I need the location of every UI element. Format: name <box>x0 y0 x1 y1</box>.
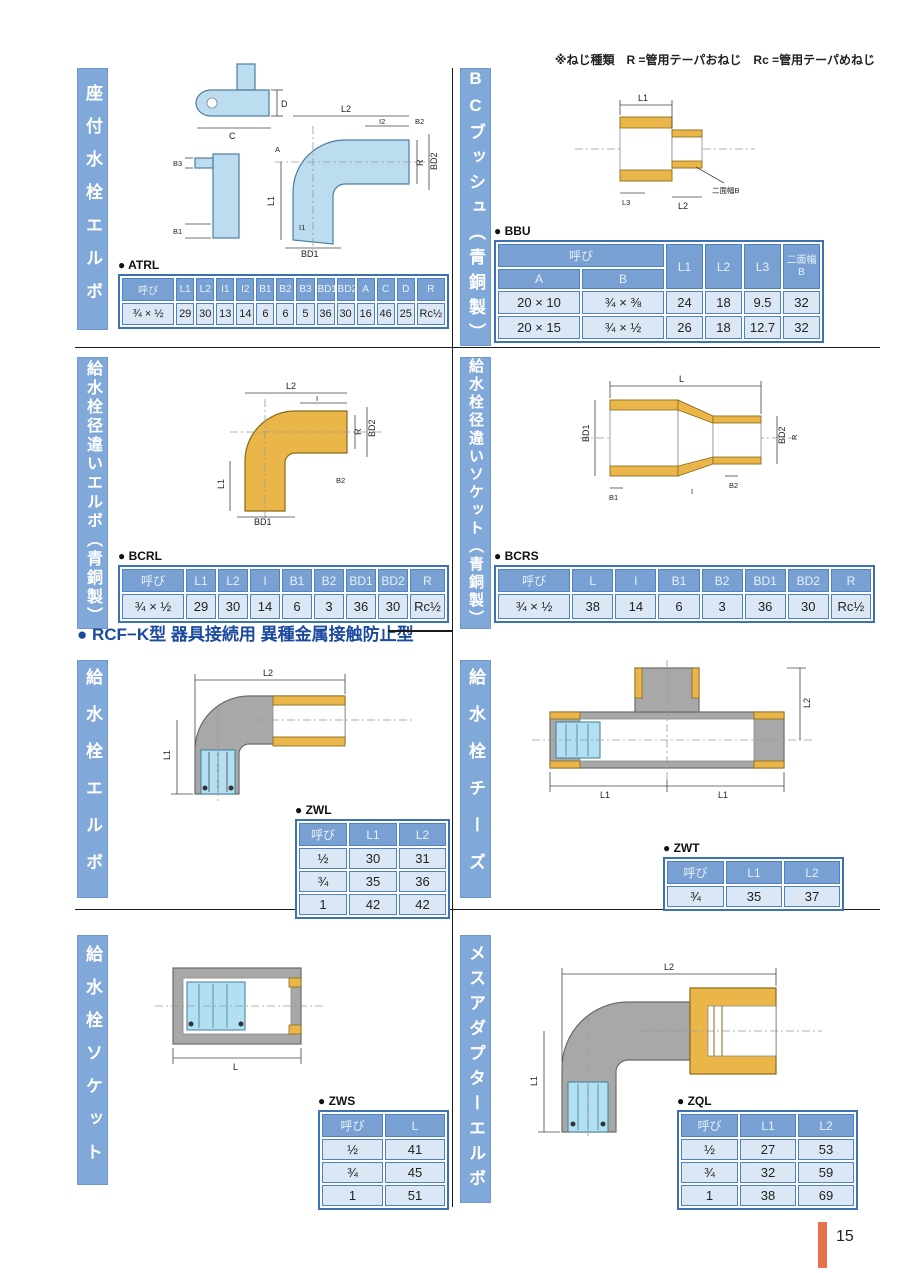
table-cell: 32 <box>783 291 820 314</box>
table-label-bcrs: ● BCRS <box>494 549 539 563</box>
table-cell: 25 <box>397 303 415 325</box>
table-cell: ¾ <box>299 871 347 892</box>
table-header-row: 呼びL1L2IB1B2BD1BD2R <box>122 569 445 592</box>
table-row: ¾ × ½293013146653630164625Rc½ <box>122 303 445 325</box>
column-header: BD1 <box>317 278 335 301</box>
zql-table: 呼びL1L2 ½2753¾325913869 <box>677 1110 858 1210</box>
table-cell: ½ <box>299 848 347 869</box>
column-header: BD1 <box>745 569 786 592</box>
bcrs-table: 呼びLIB1B2BD1BD2R ¾ × ½3814633630Rc½ <box>494 565 875 623</box>
dim-label: L1 <box>600 790 610 800</box>
table-row: ¾3259 <box>681 1162 854 1183</box>
column-header: B2 <box>276 278 294 301</box>
faucet-elbow-section-view: L2 L1 <box>162 668 415 801</box>
table-cell: 31 <box>399 848 446 869</box>
section-title-zql: メスアダプターエルボ <box>460 935 491 1203</box>
table-header-row: 呼びL1L2 <box>299 823 446 846</box>
atrl-table: 呼びL1L2I1I2B1B2B3BD1BD2ACDR ¾ × ½29301314… <box>118 274 449 329</box>
section-title-atrl: 座付水栓エルボ <box>77 68 108 330</box>
zwl-table: 呼びL1L2 ½3031¾353614242 <box>295 819 450 919</box>
column-header: B1 <box>658 569 699 592</box>
bush-section-view: L1 L2 L3 二面幅B <box>575 93 755 211</box>
column-header: I1 <box>216 278 234 301</box>
table-row: ½3031 <box>299 848 446 869</box>
column-header-line1: 二面幅 <box>787 255 817 266</box>
column-header: 呼び <box>299 823 347 846</box>
dim-label: L <box>233 1062 238 1072</box>
table-row: ¾ × ½3814633630Rc½ <box>498 594 871 619</box>
column-header: 呼び <box>498 244 664 267</box>
table-row: 151 <box>322 1185 445 1206</box>
table-cell: 69 <box>798 1185 854 1206</box>
table-cell: 45 <box>385 1162 445 1183</box>
table-cell: 1 <box>322 1185 383 1206</box>
table-row: ¾3536 <box>299 871 446 892</box>
table-cell: 14 <box>615 594 656 619</box>
table-cell: 5 <box>296 303 314 325</box>
column-header: BD2 <box>378 569 408 592</box>
table-cell: 1 <box>299 894 347 915</box>
table-cell: Rc½ <box>831 594 871 619</box>
column-header: I <box>250 569 280 592</box>
table-cell: 35 <box>349 871 397 892</box>
table-cell: 16 <box>357 303 375 325</box>
table-cell: 3 <box>702 594 743 619</box>
dim-label: D <box>281 99 288 109</box>
table-cell: 53 <box>798 1139 854 1160</box>
table-cell: 6 <box>658 594 699 619</box>
table-header-row: 呼びL1L2I1I2B1B2B3BD1BD2ACDR <box>122 278 445 301</box>
page-number: 15 <box>836 1228 854 1246</box>
dim-label: B1 <box>173 227 182 236</box>
table-cell: 30 <box>196 303 214 325</box>
dim-label: BD1 <box>581 424 591 442</box>
table-cell: ¾ × ½ <box>122 594 184 619</box>
column-header: L2 <box>196 278 214 301</box>
zwt-table: 呼びL1L2 ¾3537 <box>663 857 844 911</box>
table-header-row: 呼びLIB1B2BD1BD2R <box>498 569 871 592</box>
dim-label: B3 <box>173 159 182 168</box>
bcrl-drawing: L2 I L1 R BD2 B2 BD1 <box>190 363 408 525</box>
dim-label: I2 <box>379 117 385 126</box>
reducing-elbow-section-view: L2 I L1 R BD2 B2 BD1 <box>216 381 385 525</box>
thread-type-note: ※ねじ種類 R =管用テーパおねじ Rc =管用テーパめねじ <box>450 51 875 68</box>
column-header: L2 <box>399 823 446 846</box>
table-cell: 18 <box>705 316 742 339</box>
column-header: L2 <box>218 569 248 592</box>
catalog-page: ※ねじ種類 R =管用テーパおねじ Rc =管用テーパめねじ 座付水栓エルボ D… <box>0 0 900 1273</box>
table-cell: ¾ × ½ <box>582 316 664 339</box>
dim-label: R <box>790 434 799 440</box>
table-cell: 38 <box>740 1185 796 1206</box>
dim-label: L3 <box>622 198 630 207</box>
dim-label: B2 <box>415 117 424 126</box>
table-cell: 14 <box>236 303 254 325</box>
dim-label: BD2 <box>777 426 787 444</box>
table-cell: 20 × 15 <box>498 316 580 339</box>
table-header-row: 呼びL1L2 <box>667 861 840 884</box>
zwl-drawing: L2 L1 <box>125 658 430 803</box>
section-title-zwl: 給水栓エルボ <box>77 660 108 898</box>
column-header: L1 <box>666 244 703 289</box>
dim-label: L1 <box>216 479 226 489</box>
table-cell: 24 <box>666 291 703 314</box>
dim-label: B2 <box>336 476 345 485</box>
table-cell: 38 <box>572 594 613 619</box>
table-row: ¾45 <box>322 1162 445 1183</box>
column-header: R <box>831 569 871 592</box>
table-label-atrl: ● ATRL <box>118 258 159 272</box>
zwt-drawing: L2 L1 L1 <box>512 660 827 805</box>
dim-label: L1 <box>529 1076 539 1086</box>
dim-label: L2 <box>664 962 674 972</box>
faucet-tee-section-view: L2 L1 L1 <box>532 660 812 800</box>
dim-label: R <box>415 159 425 166</box>
column-header: L2 <box>798 1114 854 1137</box>
zws-drawing: L <box>125 946 350 1076</box>
table-row: ¾ × ½293014633630Rc½ <box>122 594 445 619</box>
table-label-bcrl: ● BCRL <box>118 549 162 563</box>
column-header: BD1 <box>346 569 376 592</box>
faucet-socket-section-view: L <box>155 968 325 1072</box>
dim-label: C <box>229 131 236 141</box>
column-header: L <box>572 569 613 592</box>
dim-label: L2 <box>263 668 273 678</box>
column-header: 二面幅B <box>783 244 820 289</box>
table-cell: 35 <box>726 886 782 907</box>
column-header: D <box>397 278 415 301</box>
dim-label: R <box>353 428 363 435</box>
table-cell: 20 × 10 <box>498 291 580 314</box>
column-header: A <box>498 269 580 289</box>
table-cell: 36 <box>399 871 446 892</box>
column-header: I2 <box>236 278 254 301</box>
dim-label: I1 <box>299 223 305 232</box>
bbu-drawing: L1 L2 L3 二面幅B <box>560 85 770 217</box>
atrl-drawing: D C B3 B1 L2 I2 <box>125 58 443 258</box>
column-header: B2 <box>702 569 743 592</box>
table-cell: 1 <box>681 1185 738 1206</box>
column-header: B3 <box>296 278 314 301</box>
table-label-zwt: ● ZWT <box>663 841 700 855</box>
table-label-zwl: ● ZWL <box>295 803 332 817</box>
section-title-bbu: BCブッシュ（青銅製） <box>460 68 491 346</box>
column-header: B2 <box>314 569 344 592</box>
zws-table: 呼びL ½41¾45151 <box>318 1110 449 1210</box>
table-header-row: 呼び L1 L2 L3 二面幅B <box>498 244 820 267</box>
column-header: C <box>377 278 395 301</box>
dim-label: L2 <box>341 104 351 114</box>
table-cell: 29 <box>186 594 216 619</box>
table-row: ½41 <box>322 1139 445 1160</box>
table-cell: 27 <box>740 1139 796 1160</box>
dim-label: L2 <box>802 698 812 708</box>
column-header: 呼び <box>681 1114 738 1137</box>
table-cell: 6 <box>256 303 274 325</box>
column-header: B1 <box>282 569 312 592</box>
center-divider <box>452 68 453 1207</box>
dim-label: 二面幅B <box>712 185 740 195</box>
table-cell: 29 <box>176 303 194 325</box>
table-cell: ¾ <box>667 886 724 907</box>
table-cell: 36 <box>317 303 335 325</box>
table-cell: ½ <box>681 1139 738 1160</box>
table-header-row: 呼びL <box>322 1114 445 1137</box>
table-cell: 30 <box>349 848 397 869</box>
dim-label: L1 <box>162 750 172 760</box>
dim-label: L1 <box>266 196 276 206</box>
section-title-zwt: 給水栓チーズ <box>460 660 491 898</box>
heading-rule <box>388 630 453 632</box>
column-header: L1 <box>176 278 194 301</box>
table-cell: 6 <box>276 303 294 325</box>
column-header: R <box>417 278 445 301</box>
reducing-socket-section-view: L BD1 BD2 R B1 I B2 <box>580 374 799 502</box>
table-cell: Rc½ <box>417 303 445 325</box>
section-title-zws: 給水栓ソケット <box>77 935 108 1185</box>
table-cell: ¾ × ½ <box>122 303 174 325</box>
table-cell: 12.7 <box>744 316 781 339</box>
dim-label: L1 <box>718 790 728 800</box>
seat-elbow-section-view: L2 I2 B2 A L1 I1 R BD2 BD1 <box>266 104 439 258</box>
table-cell: 41 <box>385 1139 445 1160</box>
table-cell: 36 <box>745 594 786 619</box>
column-header: R <box>410 569 445 592</box>
bcrl-table: 呼びL1L2IB1B2BD1BD2R ¾ × ½293014633630Rc½ <box>118 565 449 623</box>
table-cell: 9.5 <box>744 291 781 314</box>
table-row: 13869 <box>681 1185 854 1206</box>
column-header: L1 <box>186 569 216 592</box>
column-header: 呼び <box>322 1114 383 1137</box>
table-cell: Rc½ <box>410 594 445 619</box>
table-cell: ¾ × ½ <box>498 594 570 619</box>
column-header: L <box>385 1114 445 1137</box>
table-row: ¾3537 <box>667 886 840 907</box>
table-label-bbu: ● BBU <box>494 224 531 238</box>
table-row: ½2753 <box>681 1139 854 1160</box>
rcf-k-heading: ● RCF−K型 器具接続用 異種金属接触防止型 <box>77 620 414 645</box>
column-header: 呼び <box>667 861 724 884</box>
table-cell: 18 <box>705 291 742 314</box>
table-cell: 30 <box>378 594 408 619</box>
table-cell: 37 <box>784 886 840 907</box>
table-cell: 30 <box>337 303 355 325</box>
column-header: B1 <box>256 278 274 301</box>
table-header-row: 呼びL1L2 <box>681 1114 854 1137</box>
table-cell: ¾ × ⅜ <box>582 291 664 314</box>
column-header: B <box>582 269 664 289</box>
dim-label: I <box>691 487 693 496</box>
dim-label: L2 <box>286 381 296 391</box>
seat-elbow-side-view: B3 B1 <box>173 154 239 238</box>
column-header: L1 <box>726 861 782 884</box>
table-row: 20 × 15¾ × ½261812.732 <box>498 316 820 339</box>
table-label-zql: ● ZQL <box>677 1094 712 1108</box>
table-label-zws: ● ZWS <box>318 1094 355 1108</box>
table-cell: 36 <box>346 594 376 619</box>
dim-label: BD1 <box>301 249 319 258</box>
bbu-table: 呼び L1 L2 L3 二面幅B A B 20 × 10¾ × ⅜24189.5… <box>494 240 824 343</box>
table-cell: 32 <box>740 1162 796 1183</box>
dim-label: B2 <box>729 481 738 490</box>
column-header: L2 <box>705 244 742 289</box>
table-cell: 42 <box>349 894 397 915</box>
dim-label: B1 <box>609 493 618 502</box>
table-cell: 13 <box>216 303 234 325</box>
table-cell: 59 <box>798 1162 854 1183</box>
table-row: 14242 <box>299 894 446 915</box>
table-row: 20 × 10¾ × ⅜24189.532 <box>498 291 820 314</box>
dim-label: BD2 <box>429 152 439 170</box>
table-cell: 51 <box>385 1185 445 1206</box>
dim-label: L <box>679 374 684 384</box>
table-cell: 14 <box>250 594 280 619</box>
section-title-bcrs: 給水栓径違いソケット（青銅製） <box>460 357 491 629</box>
dim-label: L2 <box>678 201 688 211</box>
table-cell: 3 <box>314 594 344 619</box>
column-header: 呼び <box>122 569 184 592</box>
column-header: 呼び <box>498 569 570 592</box>
table-cell: ¾ <box>322 1162 383 1183</box>
section-title-bcrl: 給水栓径違いエルボ（青銅製） <box>77 357 108 629</box>
column-header: A <box>357 278 375 301</box>
table-cell: 30 <box>788 594 829 619</box>
column-header: L2 <box>784 861 840 884</box>
table-cell: 26 <box>666 316 703 339</box>
table-cell: ½ <box>322 1139 383 1160</box>
table-cell: 42 <box>399 894 446 915</box>
table-cell: 46 <box>377 303 395 325</box>
column-header-line2: B <box>798 267 805 278</box>
table-cell: 30 <box>218 594 248 619</box>
bcrs-drawing: L BD1 BD2 R B1 I B2 <box>565 366 813 516</box>
dim-label: BD1 <box>254 517 272 525</box>
column-header: L1 <box>740 1114 796 1137</box>
seat-elbow-top-view: D C <box>196 64 288 141</box>
column-header: BD2 <box>337 278 355 301</box>
dim-label: BD2 <box>367 419 377 437</box>
column-header: L3 <box>744 244 781 289</box>
column-header: L1 <box>349 823 397 846</box>
column-header: BD2 <box>788 569 829 592</box>
dim-label: L1 <box>638 93 648 103</box>
table-cell: 32 <box>783 316 820 339</box>
page-number-bar <box>818 1222 827 1268</box>
dim-label: I <box>316 394 318 403</box>
dim-label: A <box>275 145 280 154</box>
column-header: I <box>615 569 656 592</box>
table-cell: 6 <box>282 594 312 619</box>
table-cell: ¾ <box>681 1162 738 1183</box>
column-header: 呼び <box>122 278 174 301</box>
